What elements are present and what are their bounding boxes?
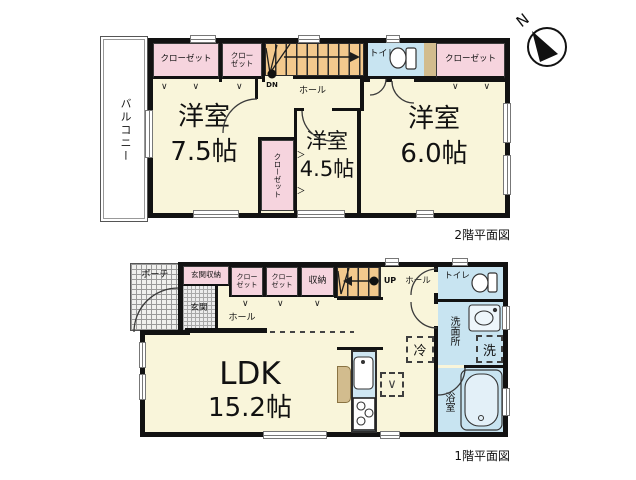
balcony-label: バルコニー — [115, 77, 135, 183]
washer-box: 洗 — [476, 335, 503, 363]
floor1-closet-b: クロー ゼット — [266, 267, 298, 297]
bifold-door-marks: ∨ ∨ — [446, 82, 496, 93]
wall — [360, 79, 364, 111]
ldk-name: LDK — [175, 356, 325, 392]
room-45-size: 4.5帖 — [297, 158, 357, 182]
window — [139, 374, 146, 400]
kitchen-cabinet — [337, 366, 351, 403]
bifold-door-marks: ∨ — [308, 299, 334, 310]
room-75-name: 洋室 — [154, 103, 254, 133]
window — [297, 210, 345, 218]
window — [190, 35, 216, 43]
window — [503, 155, 511, 195]
wall — [386, 79, 392, 82]
window — [298, 35, 320, 43]
floor2-toilet-label: トイレ — [369, 48, 397, 60]
bifold-door-marks: ∨ ∨ ∨ — [155, 82, 219, 93]
floor2-caption: 2階平面図 — [398, 226, 510, 240]
fridge-box: 冷 — [406, 336, 434, 363]
balcony-door — [145, 110, 153, 158]
wall — [185, 328, 267, 333]
window — [502, 388, 510, 416]
room-60-name: 洋室 — [385, 105, 483, 135]
bifold-door-marks: ∨ — [271, 299, 297, 310]
window — [385, 258, 399, 266]
window — [502, 306, 510, 330]
floor2-closet-nw: クローゼット — [153, 43, 219, 79]
door-frame — [424, 43, 436, 79]
floor1-stairs — [337, 267, 381, 297]
floor2-dn-label: DN — [262, 81, 282, 90]
window — [139, 342, 146, 368]
entrance-storage: 玄関収納 — [183, 266, 229, 286]
wall — [293, 76, 364, 79]
folding-door-mark: ＞ — [295, 186, 307, 198]
entrance-label: 玄関 — [185, 303, 213, 314]
window — [416, 210, 434, 218]
floor2-closet-mid: クローゼット — [261, 140, 294, 211]
floor1-caption: 1階平面図 — [398, 447, 510, 461]
wall — [357, 111, 361, 213]
porch-label: ポーチ — [133, 270, 177, 281]
balcony: バルコニー — [100, 36, 148, 222]
floor1-closet-a: クロー ゼット — [231, 267, 263, 297]
window — [380, 431, 400, 439]
kitchen-open-shelf: ∨ — [380, 372, 404, 397]
window — [503, 103, 511, 143]
floor1-up-label: UP — [381, 276, 399, 286]
room-45-name: 洋室 — [299, 130, 355, 154]
window — [386, 35, 400, 43]
ldk-size: 15.2帖 — [170, 394, 330, 424]
floor1-hall-west-label: ホール — [222, 312, 262, 324]
floor2-stairs — [265, 43, 364, 76]
compass-north-label: N — [513, 3, 541, 31]
bifold-door-marks: ∨ — [236, 299, 262, 310]
bathroom-label: 浴室 — [442, 384, 455, 420]
room-60-size: 6.0帖 — [385, 140, 483, 170]
wall — [332, 108, 360, 111]
floorplan-canvas: バルコニー クローゼット クロー ゼット トイレ クローゼット ∨ ∨ ∨ ∨ … — [0, 0, 636, 480]
wall — [255, 79, 258, 99]
open-boundary-dashes — [270, 330, 354, 333]
floor1-toilet-label: トイレ — [442, 271, 472, 282]
window — [263, 431, 327, 439]
floor2-closet-nw2: クロー ゼット — [222, 43, 262, 79]
window — [452, 258, 468, 266]
floor2-closet-ne: クローゼット — [436, 43, 505, 79]
compass-circle — [527, 27, 567, 67]
washroom-label: 洗面所 — [447, 310, 460, 352]
wall — [337, 297, 383, 300]
wall — [364, 79, 370, 82]
floor2-hall-label: ホール — [290, 85, 335, 97]
room-75-size: 7.5帖 — [154, 138, 254, 168]
bifold-door-marks: ∨ — [230, 82, 256, 93]
kitchen-counter — [351, 350, 377, 433]
floor1-hall-east-label: ホール — [402, 276, 434, 287]
window — [193, 210, 239, 218]
floor1-storage: 収納 — [301, 267, 334, 297]
wall — [215, 286, 218, 330]
